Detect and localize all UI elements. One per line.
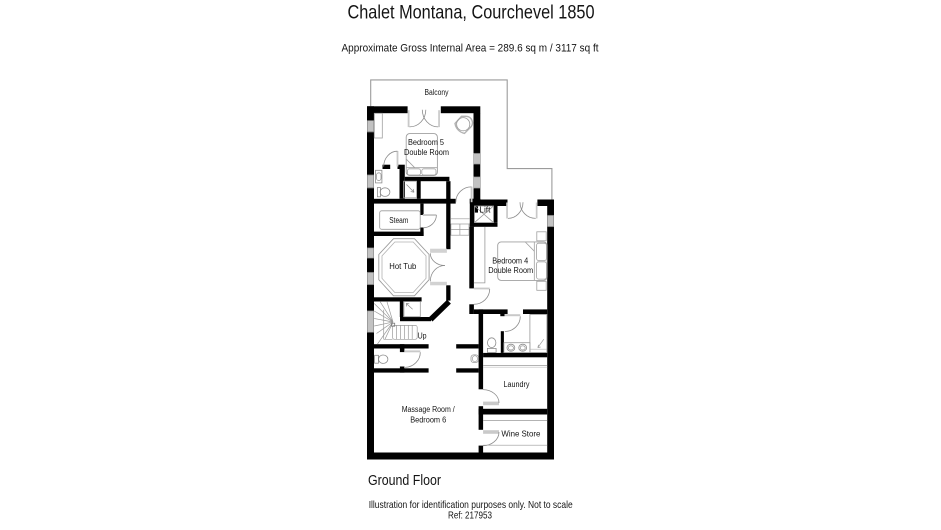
svg-text:Approximate Gross Internal Are: Approximate Gross Internal Area = 289.6 …: [342, 43, 599, 55]
svg-text:Steam: Steam: [389, 216, 408, 225]
svg-text:Massage Room /: Massage Room /: [402, 405, 456, 414]
svg-text:Double Room: Double Room: [404, 148, 449, 157]
svg-text:Up: Up: [418, 330, 427, 340]
svg-text:Lift: Lift: [479, 205, 491, 214]
svg-text:Ref: 217953: Ref: 217953: [448, 510, 492, 522]
svg-text:Double Room: Double Room: [488, 266, 533, 275]
svg-text:Chalet Montana, Courchevel 185: Chalet Montana, Courchevel 1850: [348, 2, 595, 24]
svg-text:Ground Floor: Ground Floor: [368, 473, 441, 489]
svg-text:Bedroom 6: Bedroom 6: [410, 415, 446, 424]
svg-text:Wine Store: Wine Store: [501, 430, 541, 439]
svg-text:Bedroom 5: Bedroom 5: [408, 138, 444, 147]
svg-text:Laundry: Laundry: [504, 380, 530, 389]
svg-text:Bedroom 4: Bedroom 4: [492, 256, 528, 265]
svg-text:Balcony: Balcony: [425, 88, 449, 97]
svg-text:Hot Tub: Hot Tub: [389, 262, 417, 271]
